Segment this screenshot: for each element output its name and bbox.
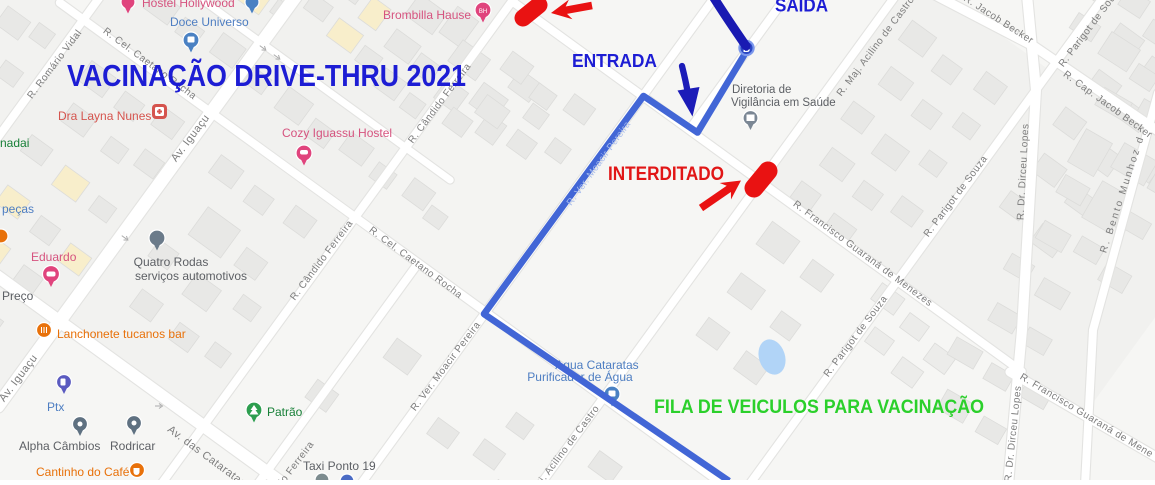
svg-text:SAÍDA: SAÍDA — [775, 0, 828, 16]
svg-text:Eduardo: Eduardo — [31, 250, 77, 264]
svg-text:serviços automotivos: serviços automotivos — [135, 269, 247, 283]
svg-text:Ptx: Ptx — [47, 400, 64, 414]
svg-text:Hostel Hollywood: Hostel Hollywood — [142, 0, 235, 10]
svg-text:ENTRADA: ENTRADA — [572, 50, 657, 71]
svg-text:Quatro Rodas: Quatro Rodas — [134, 255, 209, 269]
svg-text:INTERDITADO: INTERDITADO — [608, 164, 724, 185]
svg-text:Rodricar: Rodricar — [110, 439, 155, 453]
svg-text:Brombilla Hause: Brombilla Hause — [383, 8, 471, 22]
svg-text:Patrão: Patrão — [267, 405, 303, 419]
svg-text:Lanchonete tucanos bar: Lanchonete tucanos bar — [57, 327, 186, 341]
svg-text:Doce Universo: Doce Universo — [170, 15, 249, 29]
svg-text:BH: BH — [479, 9, 487, 15]
svg-text:Diretoria de: Diretoria de — [732, 84, 791, 96]
svg-text:nadai: nadai — [0, 136, 29, 150]
svg-text:Cantinho do Café: Cantinho do Café — [36, 465, 130, 479]
svg-text:Taxi Ponto 19: Taxi Ponto 19 — [303, 459, 376, 473]
svg-text:Alpha Câmbios: Alpha Câmbios — [19, 439, 100, 453]
svg-text:VACINAÇÃO DRIVE-THRU 2021: VACINAÇÃO DRIVE-THRU 2021 — [67, 58, 466, 93]
svg-text:FILA DE VEICULOS PARA VACINAÇÃ: FILA DE VEICULOS PARA VACINAÇÃO — [654, 396, 984, 418]
svg-text:Cozy Iguassu Hostel: Cozy Iguassu Hostel — [282, 126, 392, 140]
svg-text:Dra Layna Nunes: Dra Layna Nunes — [58, 109, 151, 123]
svg-text:Vigilância em Saúde: Vigilância em Saúde — [731, 97, 836, 109]
svg-text:Preço: Preço — [2, 289, 34, 303]
svg-text:peças: peças — [2, 202, 34, 216]
